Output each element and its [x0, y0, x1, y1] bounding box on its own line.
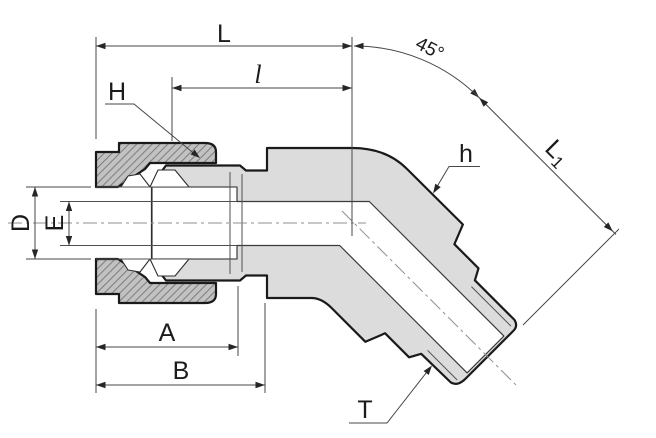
- fitting-technical-drawing: L l 45° L1 D E: [0, 0, 656, 438]
- label-D: D: [7, 214, 35, 232]
- label-H: H: [108, 78, 126, 106]
- label-l: l: [254, 60, 261, 89]
- drawing-canvas: L l 45° L1 D E: [0, 0, 656, 438]
- label-E: E: [41, 215, 69, 232]
- label-h: h: [459, 140, 473, 168]
- label-A: A: [159, 319, 176, 347]
- label-T: T: [357, 396, 372, 424]
- label-L: L: [217, 20, 231, 48]
- label-B: B: [173, 357, 190, 385]
